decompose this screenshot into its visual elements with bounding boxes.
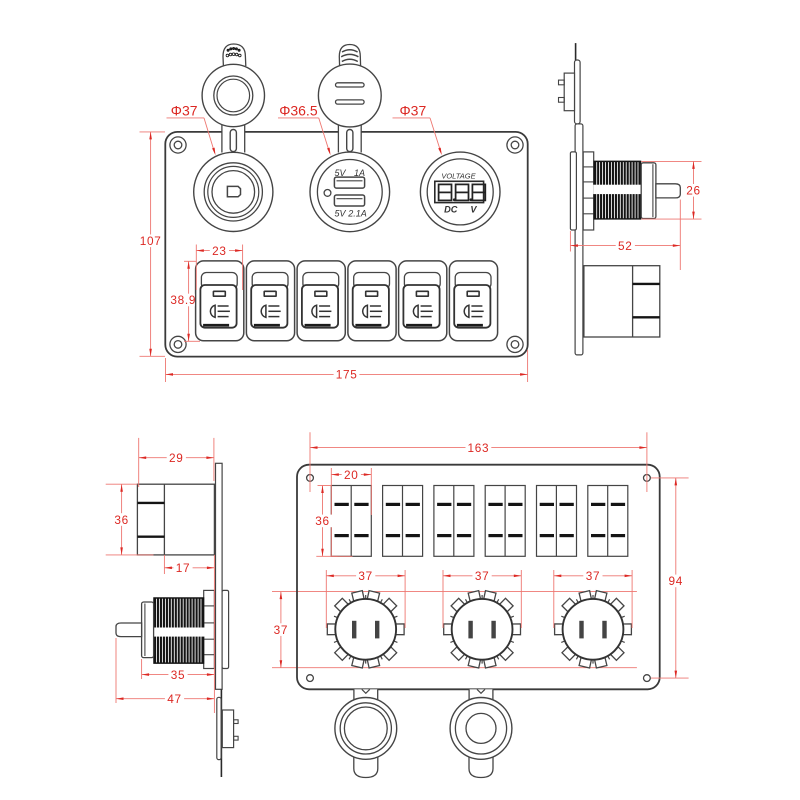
svg-text:36: 36 xyxy=(114,513,129,527)
svg-text:94: 94 xyxy=(669,574,684,588)
svg-text:Φ37: Φ37 xyxy=(171,103,198,119)
svg-text:V: V xyxy=(470,205,477,215)
svg-text:175: 175 xyxy=(336,368,358,382)
svg-text:107: 107 xyxy=(140,234,162,248)
svg-text:52: 52 xyxy=(618,239,633,253)
svg-text:163: 163 xyxy=(468,441,490,455)
svg-text:37: 37 xyxy=(274,623,289,637)
svg-text:23: 23 xyxy=(212,244,227,258)
svg-text:2.1A: 2.1A xyxy=(347,208,367,218)
svg-text:VOLTAGE: VOLTAGE xyxy=(441,171,476,180)
svg-text:26: 26 xyxy=(686,184,701,198)
svg-text:5V: 5V xyxy=(334,208,346,218)
svg-text:37: 37 xyxy=(475,569,490,583)
svg-text:17: 17 xyxy=(176,561,191,575)
svg-text:Φ37: Φ37 xyxy=(400,103,427,119)
svg-text:29: 29 xyxy=(169,451,184,465)
svg-text:35: 35 xyxy=(171,668,186,682)
svg-text:37: 37 xyxy=(358,569,373,583)
svg-text:37: 37 xyxy=(586,569,601,583)
svg-text:Φ36.5: Φ36.5 xyxy=(279,103,318,119)
svg-text:36: 36 xyxy=(315,514,330,528)
svg-text:DC: DC xyxy=(444,205,458,215)
svg-text:20: 20 xyxy=(344,468,359,482)
svg-text:47: 47 xyxy=(167,692,182,706)
svg-text:38.9: 38.9 xyxy=(170,293,196,307)
